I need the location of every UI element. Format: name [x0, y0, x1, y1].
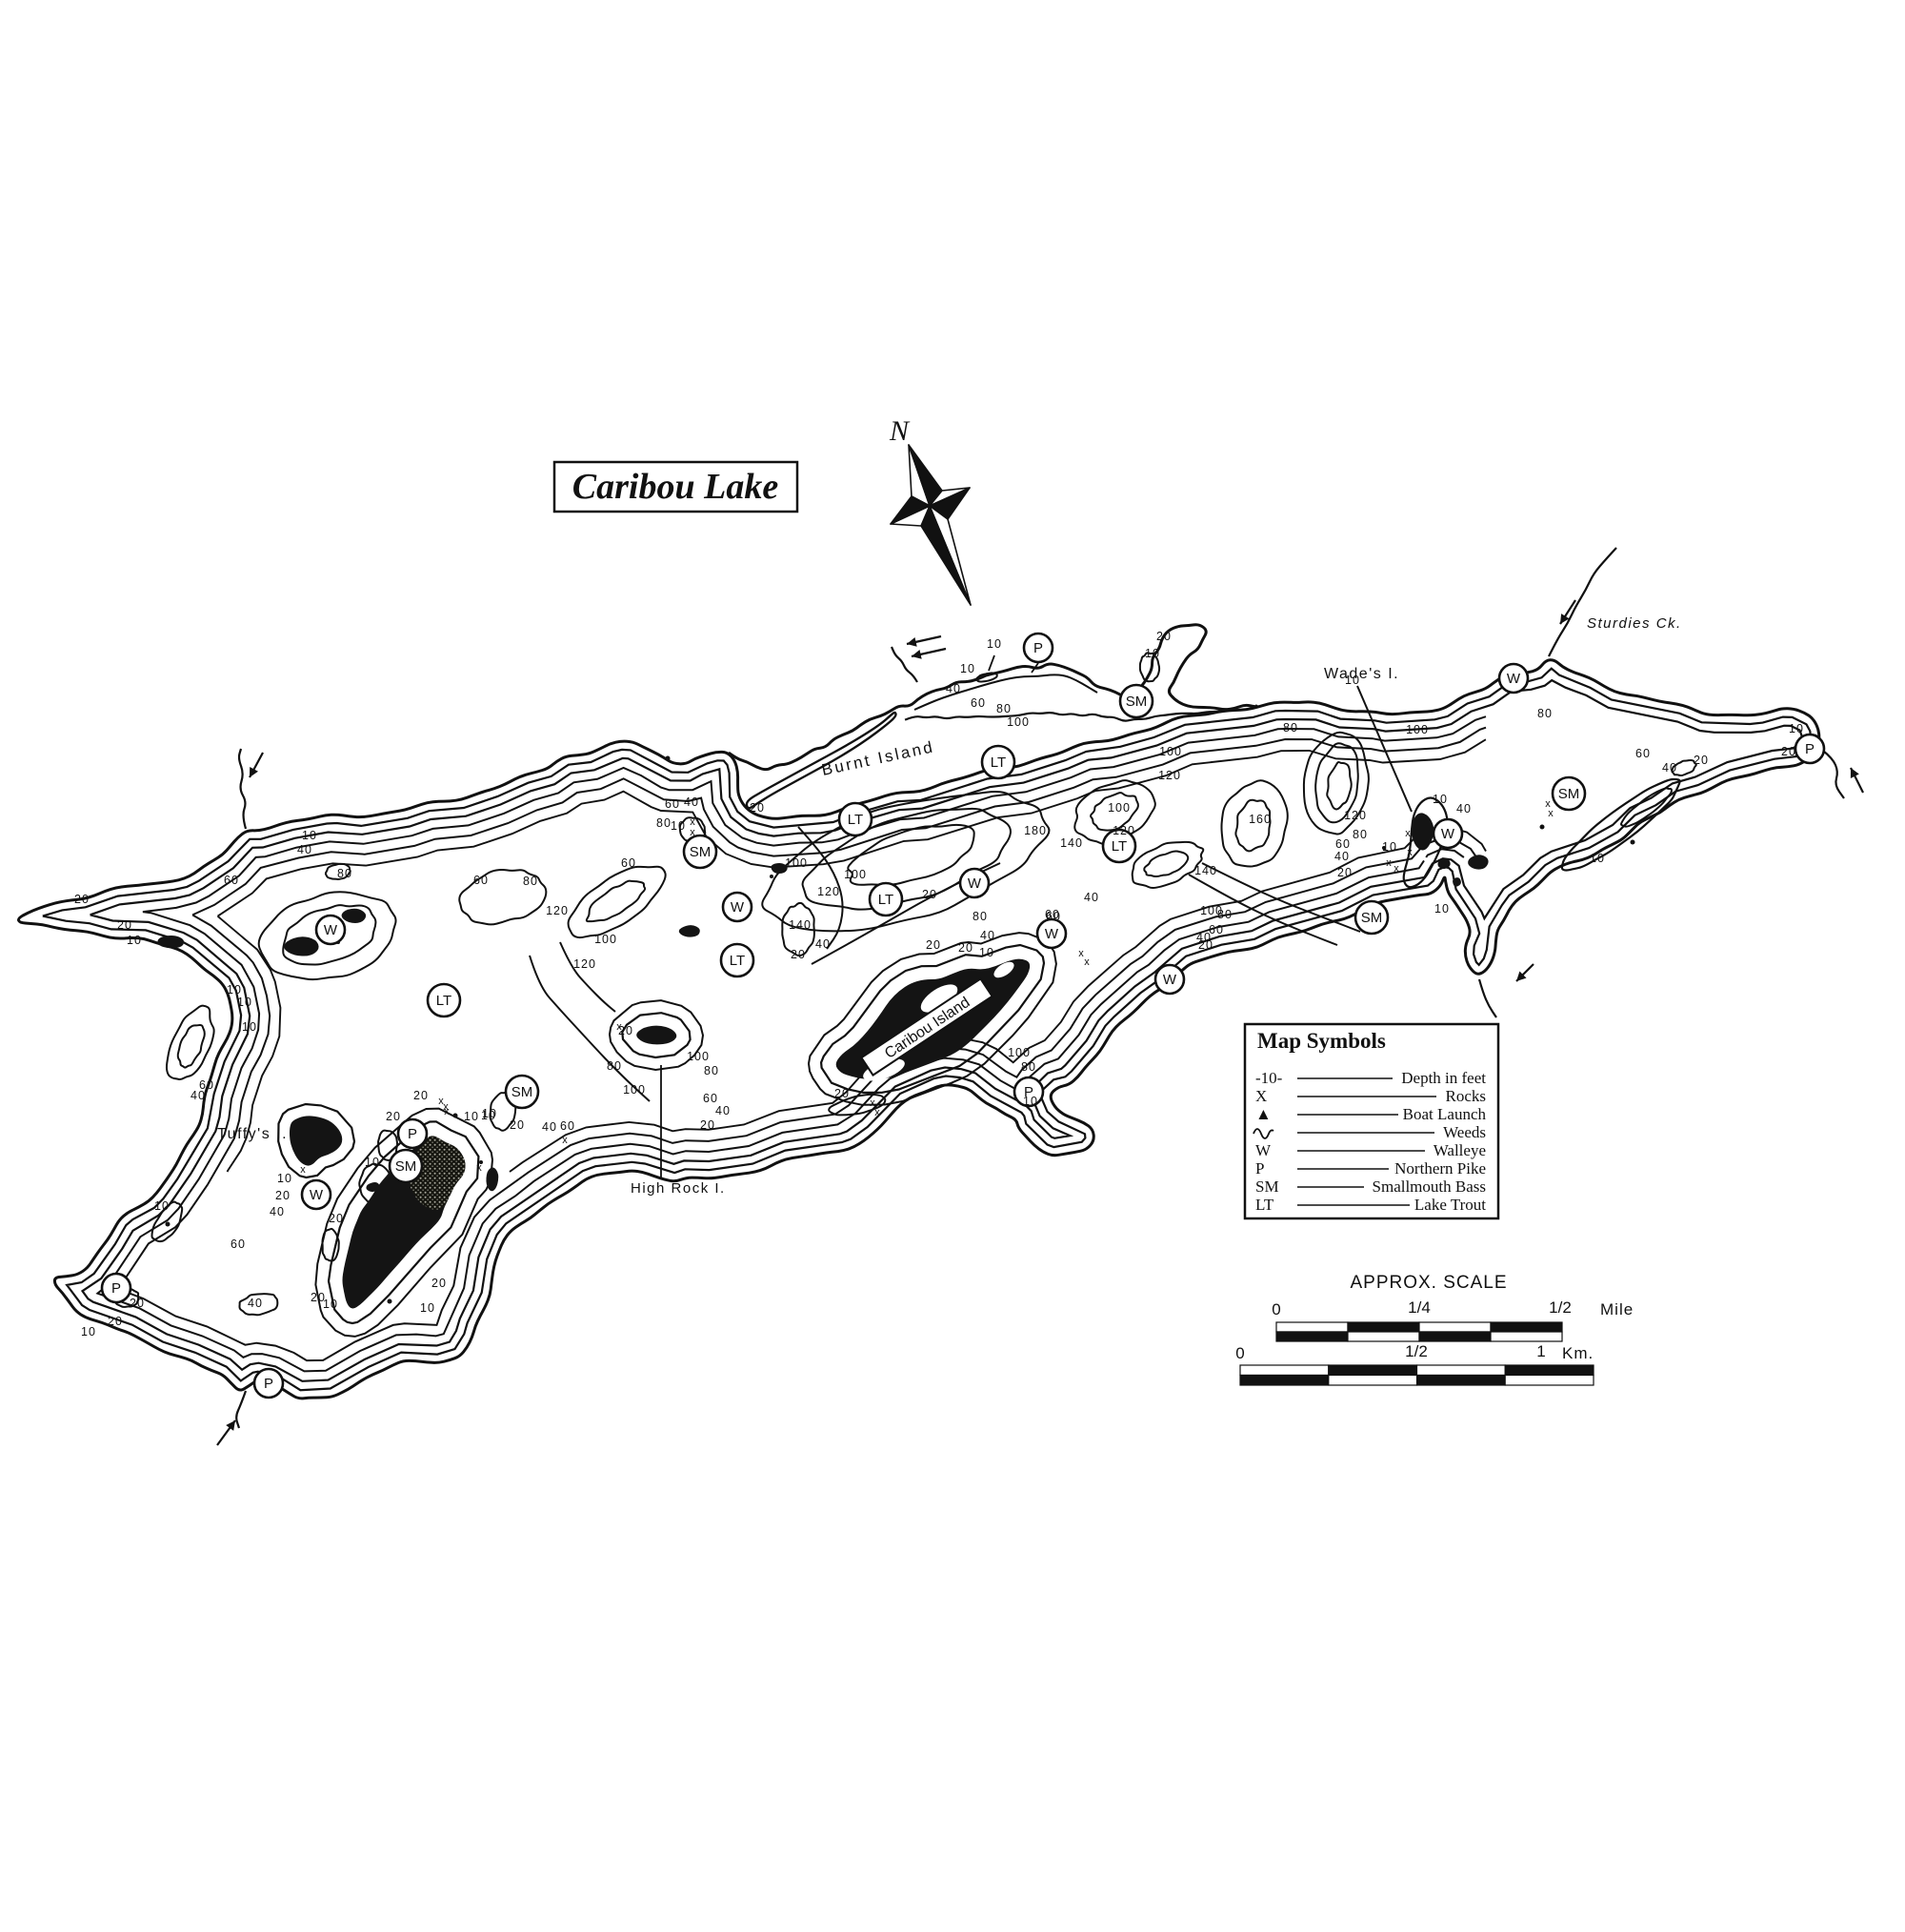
svg-text:x: x [1405, 828, 1411, 839]
svg-text:x: x [300, 1164, 306, 1176]
svg-text:10: 10 [1023, 1095, 1038, 1108]
svg-text:40: 40 [1662, 761, 1677, 775]
svg-text:40: 40 [815, 937, 831, 951]
svg-text:P: P [111, 1280, 121, 1297]
svg-text:40: 40 [946, 682, 961, 695]
svg-text:180: 180 [1024, 824, 1047, 837]
svg-text:40: 40 [1084, 891, 1099, 904]
svg-text:60: 60 [971, 696, 986, 710]
svg-text:60: 60 [473, 874, 489, 887]
svg-text:x: x [690, 827, 695, 838]
svg-text:10: 10 [987, 637, 1002, 651]
svg-text:W: W [1441, 826, 1455, 842]
svg-text:100: 100 [1159, 745, 1182, 758]
svg-text:80: 80 [607, 1059, 622, 1073]
svg-text:x: x [1084, 956, 1090, 968]
svg-text:10: 10 [302, 829, 317, 842]
svg-text:140: 140 [1194, 864, 1217, 877]
svg-text:1/4: 1/4 [1408, 1298, 1431, 1317]
svg-text:60: 60 [1635, 747, 1651, 760]
svg-text:80: 80 [1021, 1060, 1036, 1074]
svg-text:LT: LT [730, 953, 745, 969]
svg-text:20: 20 [431, 1277, 447, 1290]
svg-text:Northern Pike: Northern Pike [1394, 1159, 1486, 1177]
svg-text:120: 120 [1158, 769, 1181, 782]
svg-text:APPROX. SCALE: APPROX. SCALE [1350, 1273, 1507, 1293]
svg-text:100: 100 [1406, 723, 1429, 736]
svg-text:20: 20 [1781, 745, 1796, 758]
svg-text:Wade's I.: Wade's I. [1324, 666, 1399, 682]
svg-text:100: 100 [1008, 1046, 1031, 1059]
svg-text:10: 10 [242, 1020, 257, 1034]
svg-text:100: 100 [594, 933, 617, 946]
svg-text:120: 120 [1113, 824, 1135, 837]
svg-text:W: W [968, 875, 982, 892]
svg-text:120: 120 [817, 885, 840, 898]
svg-text:LT: LT [848, 812, 863, 828]
svg-text:100: 100 [623, 1083, 646, 1097]
svg-text:20: 20 [750, 801, 765, 815]
svg-text:High Rock I.: High Rock I. [631, 1180, 726, 1197]
svg-text:10: 10 [1434, 902, 1450, 916]
svg-text:20: 20 [275, 1189, 291, 1202]
svg-text:10: 10 [1590, 852, 1605, 865]
svg-text:10: 10 [960, 662, 975, 675]
svg-text:1: 1 [1536, 1342, 1545, 1360]
svg-text:-10-: -10- [1255, 1069, 1283, 1087]
svg-text:0: 0 [1235, 1344, 1244, 1362]
svg-text:40: 40 [190, 1089, 206, 1102]
svg-text:LT: LT [1255, 1196, 1274, 1214]
svg-text:60: 60 [665, 797, 680, 811]
svg-text:P: P [1255, 1159, 1264, 1177]
svg-text:60: 60 [703, 1092, 718, 1105]
svg-text:80: 80 [704, 1064, 719, 1077]
svg-text:P: P [264, 1376, 273, 1392]
svg-text:20: 20 [700, 1118, 715, 1132]
svg-text:160: 160 [1249, 813, 1272, 826]
svg-text:P: P [1033, 640, 1043, 656]
svg-text:x: x [476, 1162, 482, 1174]
svg-text:LT: LT [878, 892, 893, 908]
svg-text:x: x [1394, 863, 1399, 875]
svg-text:Weeds: Weeds [1443, 1123, 1486, 1141]
svg-text:100: 100 [1007, 715, 1030, 729]
svg-text:20: 20 [926, 938, 941, 952]
svg-text:W: W [1045, 926, 1059, 942]
svg-text:20: 20 [386, 1110, 401, 1123]
svg-text:100: 100 [687, 1050, 710, 1063]
svg-text:80: 80 [523, 875, 538, 888]
svg-text:20: 20 [74, 893, 90, 906]
svg-text:40: 40 [297, 843, 312, 856]
svg-text:Map Symbols: Map Symbols [1257, 1029, 1386, 1053]
svg-text:40: 40 [1456, 802, 1472, 815]
svg-text:80: 80 [1283, 721, 1298, 735]
svg-text:Km.: Km. [1562, 1344, 1594, 1362]
svg-text:100: 100 [1108, 801, 1131, 815]
svg-text:10: 10 [464, 1110, 479, 1123]
svg-text:W: W [324, 922, 338, 938]
svg-text:0: 0 [1272, 1300, 1280, 1318]
svg-text:N: N [889, 415, 911, 447]
svg-text:W: W [1255, 1141, 1272, 1159]
svg-text:x: x [1548, 808, 1554, 819]
svg-text:10: 10 [277, 1172, 292, 1185]
svg-text:60: 60 [1046, 910, 1061, 923]
svg-text:LT: LT [991, 755, 1006, 771]
svg-text:P: P [408, 1126, 417, 1142]
svg-text:120: 120 [546, 904, 569, 917]
svg-text:100: 100 [785, 856, 808, 870]
svg-text:▲: ▲ [1255, 1105, 1272, 1123]
svg-text:10: 10 [420, 1301, 435, 1315]
svg-text:40: 40 [684, 795, 699, 809]
svg-text:20: 20 [510, 1118, 525, 1132]
svg-text:10: 10 [1382, 840, 1397, 854]
svg-text:20: 20 [1694, 754, 1709, 767]
svg-text:W: W [1163, 972, 1177, 988]
svg-text:20: 20 [329, 1212, 344, 1225]
svg-text:40: 40 [248, 1297, 263, 1310]
svg-text:10: 10 [1789, 722, 1804, 735]
svg-text:40: 40 [980, 929, 995, 942]
svg-text:80: 80 [1353, 828, 1368, 841]
svg-text:1/2: 1/2 [1549, 1298, 1572, 1317]
svg-text:SM: SM [1558, 786, 1580, 802]
svg-text:x: x [562, 1135, 568, 1146]
svg-text:20: 20 [922, 888, 937, 901]
svg-text:100: 100 [1200, 904, 1223, 917]
svg-text:Mile: Mile [1600, 1300, 1634, 1318]
svg-text:1/2: 1/2 [1405, 1342, 1428, 1360]
svg-text:Tuffy's I.: Tuffy's I. [217, 1126, 288, 1142]
svg-text:20: 20 [1337, 866, 1353, 879]
svg-text:10: 10 [1433, 793, 1448, 806]
svg-text:20: 20 [108, 1315, 123, 1328]
svg-text:40: 40 [270, 1205, 285, 1218]
svg-text:20: 20 [413, 1089, 429, 1102]
svg-text:10: 10 [979, 946, 994, 959]
svg-text:X: X [1255, 1087, 1267, 1105]
svg-text:20: 20 [834, 1087, 850, 1100]
svg-text:60: 60 [1335, 837, 1351, 851]
svg-text:60: 60 [1209, 923, 1224, 936]
svg-text:Depth in feet: Depth in feet [1401, 1069, 1486, 1087]
svg-text:Walleye: Walleye [1434, 1141, 1486, 1159]
svg-text:Smallmouth Bass: Smallmouth Bass [1373, 1177, 1486, 1196]
svg-text:Lake Trout: Lake Trout [1414, 1196, 1486, 1214]
svg-text:10: 10 [671, 819, 686, 833]
svg-text:SM: SM [395, 1158, 417, 1175]
svg-text:40: 40 [715, 1104, 731, 1117]
svg-text:Sturdies Ck.: Sturdies Ck. [1587, 615, 1682, 632]
svg-text:60: 60 [560, 1119, 575, 1133]
svg-text:x: x [1407, 847, 1413, 858]
svg-text:120: 120 [1344, 809, 1367, 822]
svg-text:SM: SM [511, 1084, 533, 1100]
svg-text:Caribou Lake: Caribou Lake [572, 467, 779, 507]
svg-text:W: W [310, 1187, 324, 1203]
svg-text:140: 140 [1060, 836, 1083, 850]
svg-text:20: 20 [618, 1024, 633, 1037]
svg-text:20: 20 [791, 948, 806, 961]
svg-text:80: 80 [973, 910, 988, 923]
svg-text:SM: SM [1126, 694, 1148, 710]
svg-text:x: x [874, 1107, 880, 1118]
svg-text:10: 10 [1345, 674, 1360, 687]
svg-text:10: 10 [481, 1109, 496, 1122]
svg-text:100: 100 [844, 868, 867, 881]
svg-text:80: 80 [656, 816, 672, 830]
svg-text:LT: LT [1112, 838, 1127, 855]
svg-text:80: 80 [337, 867, 352, 880]
svg-text:10: 10 [154, 1199, 170, 1213]
svg-text:140: 140 [789, 918, 812, 932]
svg-text:80: 80 [1537, 707, 1553, 720]
svg-text:60: 60 [224, 874, 239, 887]
svg-text:x: x [444, 1106, 450, 1117]
svg-text:60: 60 [231, 1238, 246, 1251]
svg-text:20: 20 [958, 941, 973, 955]
svg-text:20: 20 [117, 918, 132, 932]
svg-text:40: 40 [542, 1120, 557, 1134]
svg-text:10: 10 [81, 1325, 96, 1338]
svg-text:W: W [731, 899, 745, 916]
svg-text:120: 120 [573, 957, 596, 971]
svg-text:80: 80 [996, 702, 1012, 715]
svg-text:10: 10 [323, 1298, 338, 1311]
svg-text:Boat Launch: Boat Launch [1403, 1105, 1487, 1123]
svg-text:10: 10 [227, 983, 242, 996]
svg-text:P: P [1805, 741, 1815, 757]
svg-text:LT: LT [436, 993, 451, 1009]
svg-text:20: 20 [1156, 630, 1172, 643]
svg-text:x: x [1386, 857, 1392, 869]
svg-text:10: 10 [127, 934, 142, 947]
svg-text:10: 10 [365, 1156, 380, 1169]
svg-text:W: W [1507, 671, 1521, 687]
svg-text:60: 60 [621, 856, 636, 870]
svg-text:40: 40 [1334, 850, 1350, 863]
svg-text:SM: SM [690, 844, 712, 860]
svg-text:SM: SM [1361, 910, 1383, 926]
svg-text:10: 10 [1145, 647, 1160, 660]
svg-text:SM: SM [1255, 1177, 1279, 1196]
svg-text:10: 10 [237, 996, 252, 1009]
svg-text:20: 20 [130, 1297, 145, 1310]
svg-text:Rocks: Rocks [1446, 1087, 1487, 1105]
